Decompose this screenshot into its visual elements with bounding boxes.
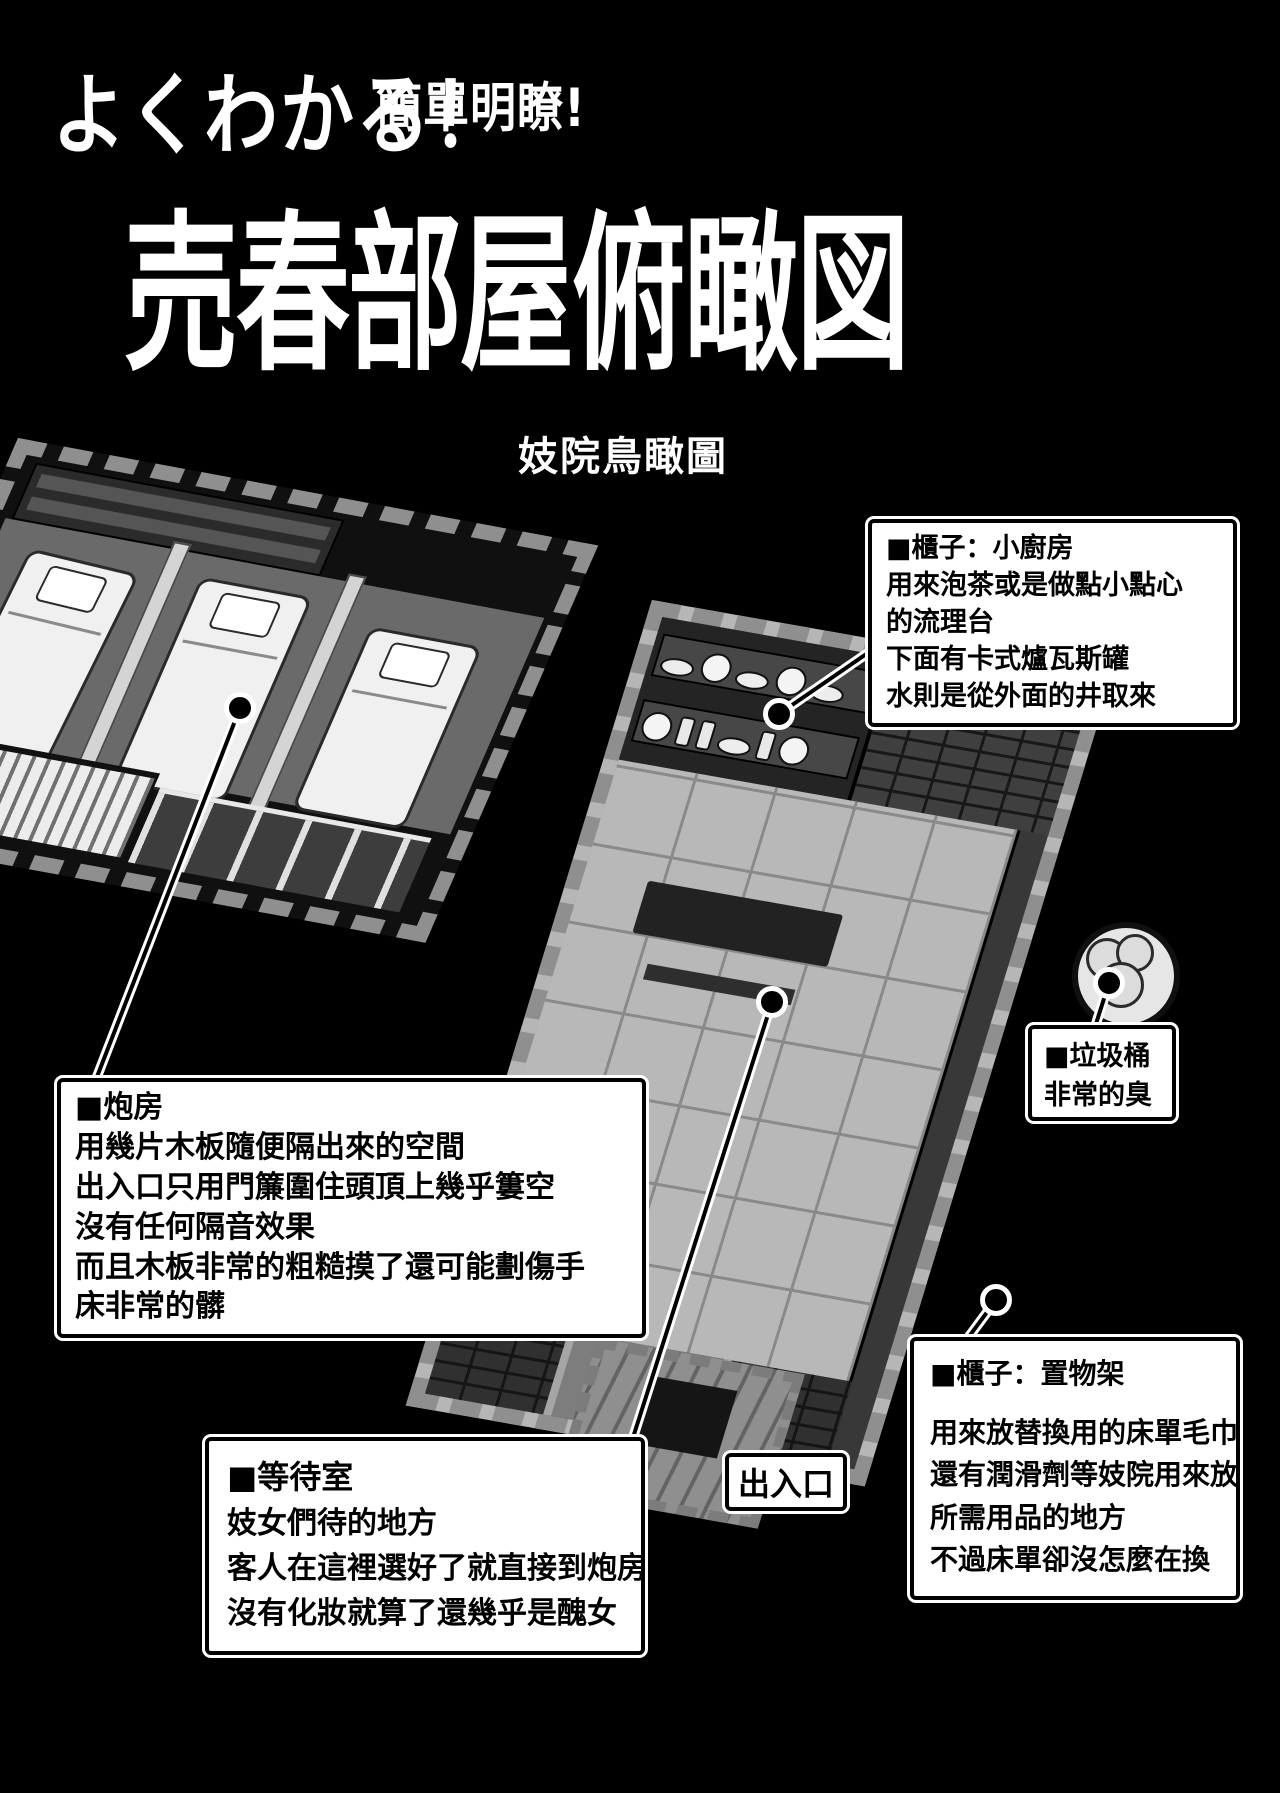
annotation-waiting-line: 客人在這裡選好了就直接到炮房: [227, 1546, 623, 1591]
annotation-waiting-title: ■等待室: [227, 1453, 623, 1501]
subtitle: 妓院鳥瞰圖: [518, 424, 728, 482]
spacer: [930, 1396, 1220, 1412]
bowl: [658, 656, 697, 679]
annotation-shelf-line: 不過床單卻沒怎麼在換: [930, 1539, 1220, 1582]
bedroom-building: [0, 438, 598, 943]
main-title-logo: 売春部屋俯瞰図: [124, 156, 908, 404]
plate: [775, 734, 813, 768]
leader-dot-kitchen: [763, 698, 795, 730]
blanket-fold: [182, 639, 278, 659]
leader-dot-shelf: [980, 1284, 1012, 1316]
manga-page: よくわかる！ 簡單明瞭! 売春部屋俯瞰図 妓院鳥瞰圖: [0, 0, 1280, 1793]
annotation-bedroom-line: 而且木板非常的粗糙摸了還可能劃傷手: [75, 1248, 628, 1288]
annotation-bedroom-line: 用幾片木板隨便隔出來的空間: [75, 1128, 628, 1168]
annotation-waiting-line: 妓女們待的地方: [227, 1501, 623, 1546]
plate: [638, 710, 676, 744]
annotation-shelf: ■櫃子：置物架 用來放替換用的床單毛巾 還有潤滑劑等妓院用來放 所需用品的地方 …: [910, 1337, 1240, 1600]
pillow: [208, 592, 283, 639]
annotation-shelf-line: 所需用品的地方: [930, 1497, 1220, 1540]
annotation-bedroom-line: 床非常的髒: [75, 1287, 628, 1327]
trash-bucket: [1072, 922, 1180, 1030]
bottle: [694, 720, 718, 752]
annotation-bedroom-line: 出入口只用門簾圍住頭頂上幾乎簍空: [75, 1168, 628, 1208]
blanket-fold: [8, 611, 102, 636]
annotation-kitchen-title: ■櫃子：小廚房: [886, 531, 1219, 568]
entrance-label: 出入口: [725, 1453, 847, 1511]
blanket-fold: [352, 689, 448, 709]
annotation-trash-title: ■垃圾桶: [1044, 1037, 1160, 1076]
bottle: [673, 716, 697, 748]
annotation-kitchen: ■櫃子：小廚房 用來泡茶或是做點小點心 的流理台 下面有卡式爐瓦斯罐 水則是從外…: [868, 519, 1237, 727]
page-title-chinese: 簡單明瞭!: [376, 66, 586, 142]
annotation-shelf-line: 還有潤滑劑等妓院用來放: [930, 1454, 1220, 1497]
pillow: [377, 642, 452, 689]
annotation-kitchen-line: 下面有卡式爐瓦斯罐: [886, 642, 1219, 679]
plate: [697, 651, 735, 685]
leader-dot-trash: [1093, 967, 1125, 999]
annotation-bedroom-title: ■炮房: [75, 1088, 628, 1128]
bowl: [733, 669, 772, 692]
annotation-kitchen-line: 用來泡茶或是做點小點心: [886, 568, 1219, 605]
annotation-bedroom-line: 沒有任何隔音效果: [75, 1208, 628, 1248]
pillow: [34, 565, 109, 614]
annotation-shelf-line: 用來放替換用的床單毛巾: [930, 1412, 1220, 1455]
annotation-kitchen-line: 水則是從外面的井取來: [886, 679, 1219, 716]
bed: [0, 548, 140, 777]
annotation-waiting: ■等待室 妓女們待的地方 客人在這裡選好了就直接到炮房 沒有化妝就算了還幾乎是醜…: [205, 1437, 645, 1655]
annotation-trash: ■垃圾桶 非常的臭: [1028, 1025, 1176, 1121]
leader-dot-waiting: [756, 986, 788, 1018]
bowl: [714, 735, 753, 758]
bottle: [754, 730, 778, 762]
leader-dot-bedroom: [224, 692, 256, 724]
annotation-kitchen-line: 的流理台: [886, 605, 1219, 642]
annotation-shelf-title: ■櫃子：置物架: [930, 1353, 1220, 1396]
annotation-waiting-line: 沒有化妝就算了還幾乎是醜女: [227, 1591, 623, 1636]
annotation-bedroom: ■炮房 用幾片木板隨便隔出來的空間 出入口只用門簾圍住頭頂上幾乎簍空 沒有任何隔…: [57, 1078, 646, 1338]
annotation-trash-line: 非常的臭: [1044, 1076, 1160, 1115]
